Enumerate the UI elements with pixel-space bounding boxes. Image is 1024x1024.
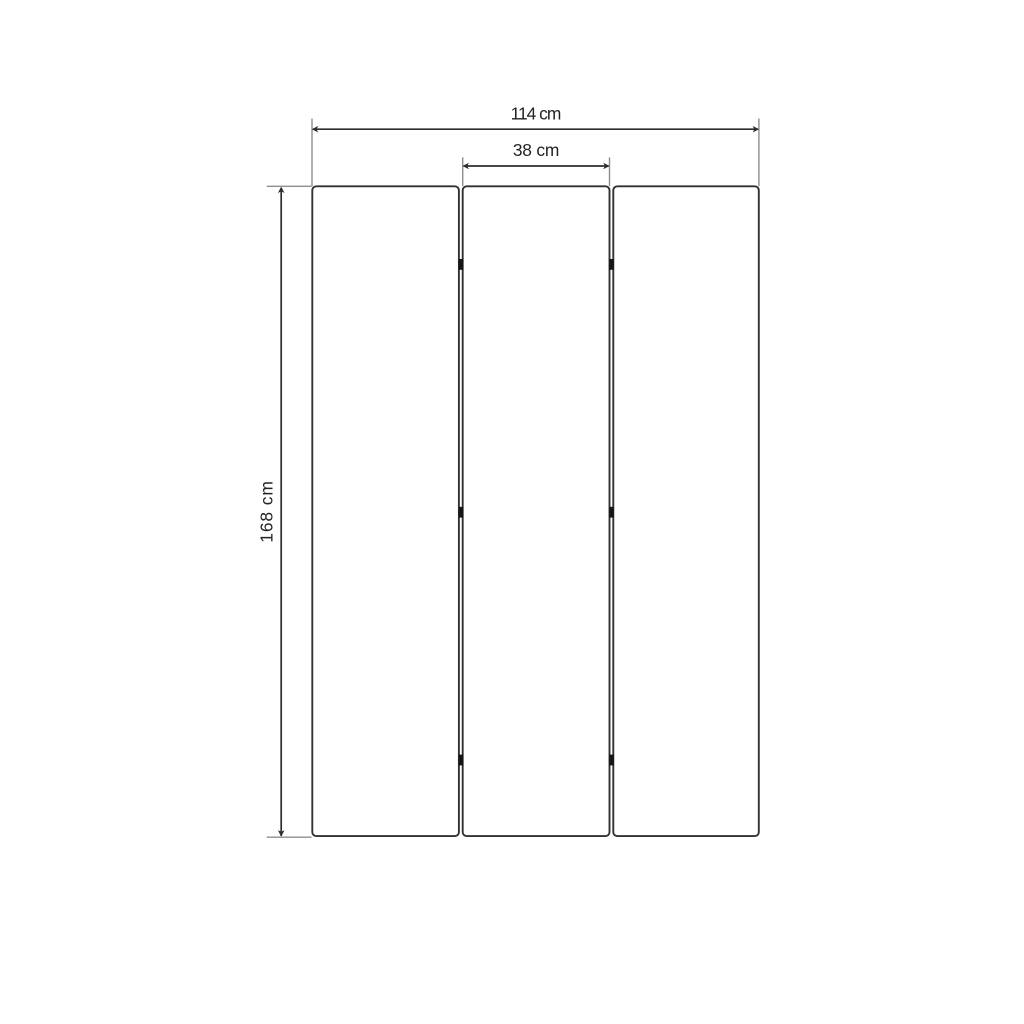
svg-text:168 cm: 168 cm bbox=[257, 480, 277, 542]
svg-text:38 cm: 38 cm bbox=[513, 140, 559, 160]
svg-text:114 cm: 114 cm bbox=[511, 103, 561, 123]
